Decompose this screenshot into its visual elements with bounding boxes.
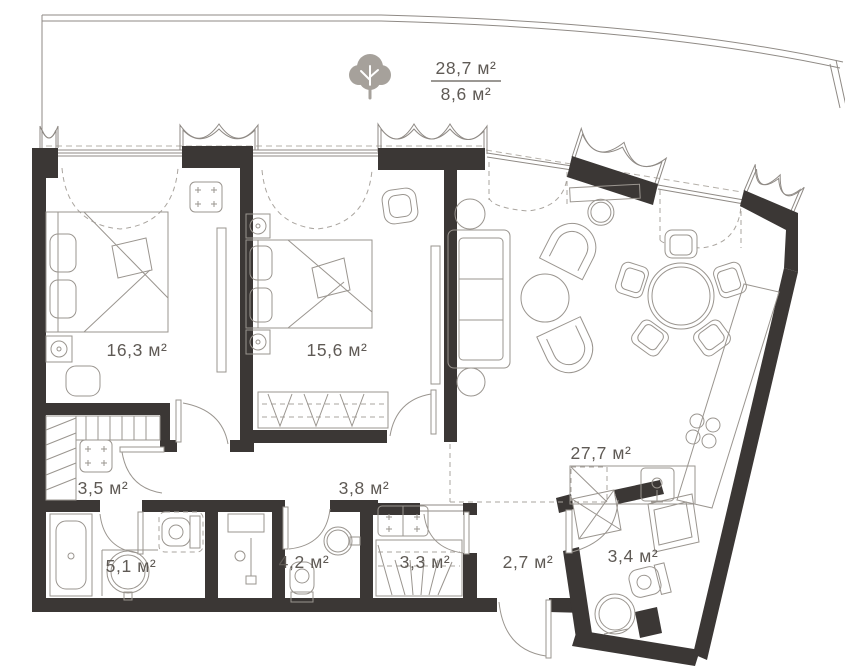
toilet xyxy=(159,512,203,552)
zone-boundaries xyxy=(450,444,563,502)
wall-panel xyxy=(431,246,440,384)
tree-icon xyxy=(349,54,391,98)
label-bedroom-2: 15,6 м² xyxy=(307,340,368,360)
nightstand xyxy=(46,336,72,362)
dining-chair xyxy=(665,230,697,258)
label-bedroom-1: 16,3 м² xyxy=(107,340,168,360)
washer xyxy=(80,440,112,472)
label-bathroom-2: 4,2 м² xyxy=(279,552,330,572)
wall-bath1-right xyxy=(205,512,218,598)
plant xyxy=(457,368,485,396)
armchair xyxy=(537,317,601,381)
coffee-table xyxy=(521,274,569,322)
sofa xyxy=(448,230,510,368)
stove xyxy=(686,414,720,448)
door-bathroom-2 xyxy=(283,507,330,549)
terrace-edge-outer xyxy=(42,15,843,62)
plant xyxy=(455,199,485,229)
wall-bedroom2-bottom xyxy=(253,430,387,443)
wall-left xyxy=(32,148,46,612)
label-entry-hall: 2,7 м² xyxy=(503,552,554,572)
label-storage: 3,3 м² xyxy=(400,552,451,572)
terrace: 28,7 м² 8,6 м² xyxy=(42,15,845,150)
entry-door xyxy=(499,600,551,658)
utility-room-fixtures xyxy=(228,514,264,584)
washbasin xyxy=(595,594,635,634)
dining-table xyxy=(648,263,714,329)
label-bathroom-main: 5,1 м² xyxy=(106,556,157,576)
terrace-area-reduced: 8,6 м² xyxy=(441,84,492,104)
bedroom-1-furniture xyxy=(46,182,226,396)
door-bedroom-1 xyxy=(176,400,228,444)
terrace-area-total: 28,7 м² xyxy=(436,58,497,78)
pillow xyxy=(50,280,76,318)
bedroom-2-furniture xyxy=(246,187,440,428)
dresser xyxy=(190,182,222,212)
dining-chair xyxy=(629,317,671,358)
window-living-1 xyxy=(487,153,572,170)
wall-pier-3 xyxy=(567,156,658,205)
wall-bath2-right xyxy=(360,503,373,612)
toilet xyxy=(627,563,671,601)
label-bathroom-3: 3,4 м² xyxy=(608,546,659,566)
wall-panel xyxy=(217,228,226,372)
wall-corner-left xyxy=(46,148,58,178)
terrace-area-fraction: 28,7 м² 8,6 м² xyxy=(431,58,501,104)
window-living-2 xyxy=(658,185,744,204)
floor-plan-page: 28,7 м² 8,6 м² xyxy=(0,0,845,667)
window-bedroom-2 xyxy=(253,150,378,156)
door-bedroom-2 xyxy=(390,390,436,436)
wall-storage-right xyxy=(463,553,477,612)
fridge xyxy=(571,467,607,502)
armchair xyxy=(540,215,605,280)
storage-fixtures xyxy=(376,506,462,596)
wall-bottom xyxy=(32,598,497,612)
door-bathroom-main xyxy=(100,512,143,554)
pillow xyxy=(50,234,76,272)
blanket xyxy=(288,240,372,328)
window-bedroom-1 xyxy=(58,150,182,156)
dining-set xyxy=(614,230,749,359)
terrace-edge-right xyxy=(830,60,845,108)
bathtub xyxy=(50,514,92,596)
cabinet xyxy=(228,514,264,532)
dining-chair xyxy=(614,260,651,299)
double-bed xyxy=(246,240,372,328)
wall-wardrobe-top xyxy=(46,403,162,415)
pillow xyxy=(250,246,272,280)
small-basin xyxy=(235,551,245,561)
blanket xyxy=(84,212,168,332)
dining-chair xyxy=(712,260,749,299)
floor-plan: 28,7 м² 8,6 м² xyxy=(0,0,845,667)
wardrobe xyxy=(258,392,388,428)
label-hallway: 3,8 м² xyxy=(339,478,390,498)
wall-corner-right xyxy=(740,190,798,272)
wall-pier-1 xyxy=(182,146,253,168)
wall-entry-bath3 xyxy=(563,547,593,645)
label-wardrobe-hall: 3,5 м² xyxy=(78,478,129,498)
wall-bedroom2-right xyxy=(444,153,457,442)
chair xyxy=(66,366,100,396)
label-kitchen-living: 27,7 м² xyxy=(571,443,632,463)
armchair-small xyxy=(381,187,419,225)
washbasin xyxy=(324,527,360,555)
wall-pier-2 xyxy=(378,148,485,170)
pillow xyxy=(250,288,272,322)
living-room-furniture xyxy=(448,184,642,396)
